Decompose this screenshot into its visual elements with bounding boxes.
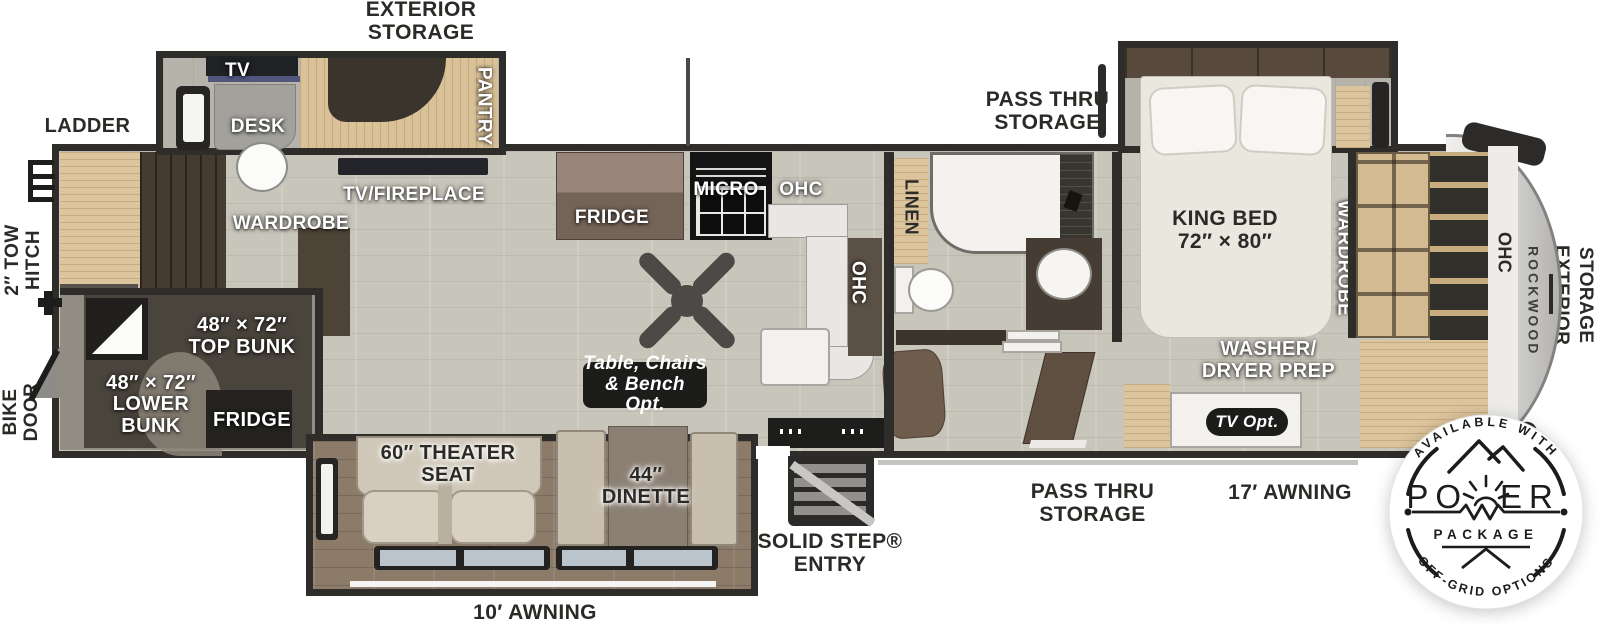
ladder-rung (33, 174, 55, 179)
table-option-label: Table, Chairs & Bench Opt. (583, 362, 707, 408)
king-pillow (1238, 84, 1327, 156)
badge-power-left: PO (1406, 478, 1468, 515)
rear-display-cabinet (1356, 152, 1430, 338)
king-headboard (1125, 48, 1391, 78)
ohc-kitchen-label: OHC (770, 180, 832, 200)
solid-step-stairs (788, 456, 874, 526)
passthru-divider (686, 58, 690, 146)
rear-hutch-cabinet (1430, 152, 1490, 342)
badge-package-text: PACKAGE (1433, 527, 1538, 542)
rv-floorplan: EXTERIOR STORAGE LADDER 2″ TOW HITCH BIK… (0, 0, 1600, 625)
ohc-island-label: OHC (845, 246, 869, 320)
micro-label: MICRO (686, 180, 766, 200)
tv-fireplace-label: TV/FIREPLACE (330, 184, 498, 206)
awning-rail-17 (878, 460, 1358, 465)
washer-dryer-closet (1124, 384, 1170, 448)
bedroom-divider-wall (1348, 152, 1356, 338)
awning-10-label: 10′ AWNING (455, 602, 615, 625)
vanity-desk (896, 330, 1008, 345)
ladder-rung (33, 185, 55, 190)
power-package-badge: AVAILABLE WITH PO ER PACKAGE OFF-GRID OP… (1386, 412, 1586, 612)
bath-sink (1036, 248, 1092, 300)
bathroom-wall-left (884, 152, 894, 452)
slideout-window-glass (183, 94, 204, 142)
lower-bunk-label: 48″ × 72″ LOWER BUNK (84, 366, 218, 444)
pantry-label: PANTRY (470, 62, 496, 150)
ceiling-fan (627, 241, 747, 361)
slideout-bottom-window-glass (380, 550, 456, 566)
entry-cabinet (760, 328, 830, 386)
theater-cushion (362, 490, 446, 544)
solid-step-entry-label: SOLID STEP® ENTRY (755, 528, 905, 580)
ladder-icon (28, 160, 54, 202)
top-bunk-label: 48″ × 72″ TOP BUNK (176, 313, 308, 361)
awning-rail-10 (350, 581, 716, 587)
awning-17-label: 17′ AWNING (1215, 481, 1365, 505)
tow-hitch-icon-cross (44, 291, 53, 315)
front-storage-cabinet (60, 152, 140, 286)
desk-chair (236, 142, 288, 192)
badge-power-right: ER (1500, 478, 1560, 515)
fan-hub (671, 285, 703, 317)
ladder-label: LADDER (40, 115, 135, 139)
exterior-storage-top-label: EXTERIOR STORAGE (336, 0, 506, 44)
bunk-room-wall-right (315, 288, 323, 450)
cooktop-dots (780, 429, 806, 434)
slideout-bottom-window-glass (634, 550, 712, 566)
theater-cushion (450, 490, 536, 544)
linen-label: LINEN (898, 165, 924, 249)
entry-opening (756, 446, 790, 459)
cooktop-dots (842, 429, 868, 434)
bunk-room-wall-top (60, 288, 322, 295)
king-window-frame (1372, 82, 1389, 148)
cap-handle (1549, 274, 1553, 314)
tv-opt-label: TV Opt. (1206, 408, 1288, 436)
wardrobe-front-label: WARDROBE (226, 212, 356, 236)
ohc-rear-label: OHC (1492, 224, 1516, 282)
tv-fireplace-unit (338, 158, 488, 175)
tv-label: TV (210, 61, 265, 81)
king-bed-label: KING BED 72″ × 80″ (1150, 206, 1300, 256)
slideout-bottom-window-glass (562, 550, 626, 566)
bathroom-wall-right (1112, 152, 1122, 342)
theater-window-glass (321, 464, 333, 534)
dinette-label: 44″ DINETTE (586, 462, 706, 512)
king-pillow (1148, 84, 1237, 156)
front-wardrobe-cabinet (140, 152, 226, 296)
washer-dryer-label: WASHER/ DRYER PREP (1196, 338, 1341, 384)
king-nightstand (1336, 86, 1370, 148)
theater-seat-label: 60″ THEATER SEAT (350, 440, 546, 490)
rear-floor-strip (1488, 146, 1518, 450)
kitchen-fridge-label: FRIDGE (560, 206, 664, 230)
pass-thru-bottom-label: PASS THRU STORAGE (1020, 480, 1165, 528)
passthru-door-strut (1098, 64, 1106, 138)
counter-top (768, 204, 848, 238)
bath-door-threshold (1029, 440, 1087, 448)
toilet-bowl (908, 268, 954, 312)
bunk-fridge-label: FRIDGE (208, 410, 296, 432)
slideout-bottom-window-glass (464, 550, 544, 566)
tow-hitch-label: 2″ TOW HITCH (2, 218, 46, 302)
desk-label: DESK (222, 116, 294, 138)
rockwood-brand-label: ROCKWOOD (1520, 226, 1546, 376)
bedroom-step (1002, 341, 1062, 353)
range-vent-lines (696, 168, 766, 178)
bedroom-step (1006, 330, 1060, 341)
